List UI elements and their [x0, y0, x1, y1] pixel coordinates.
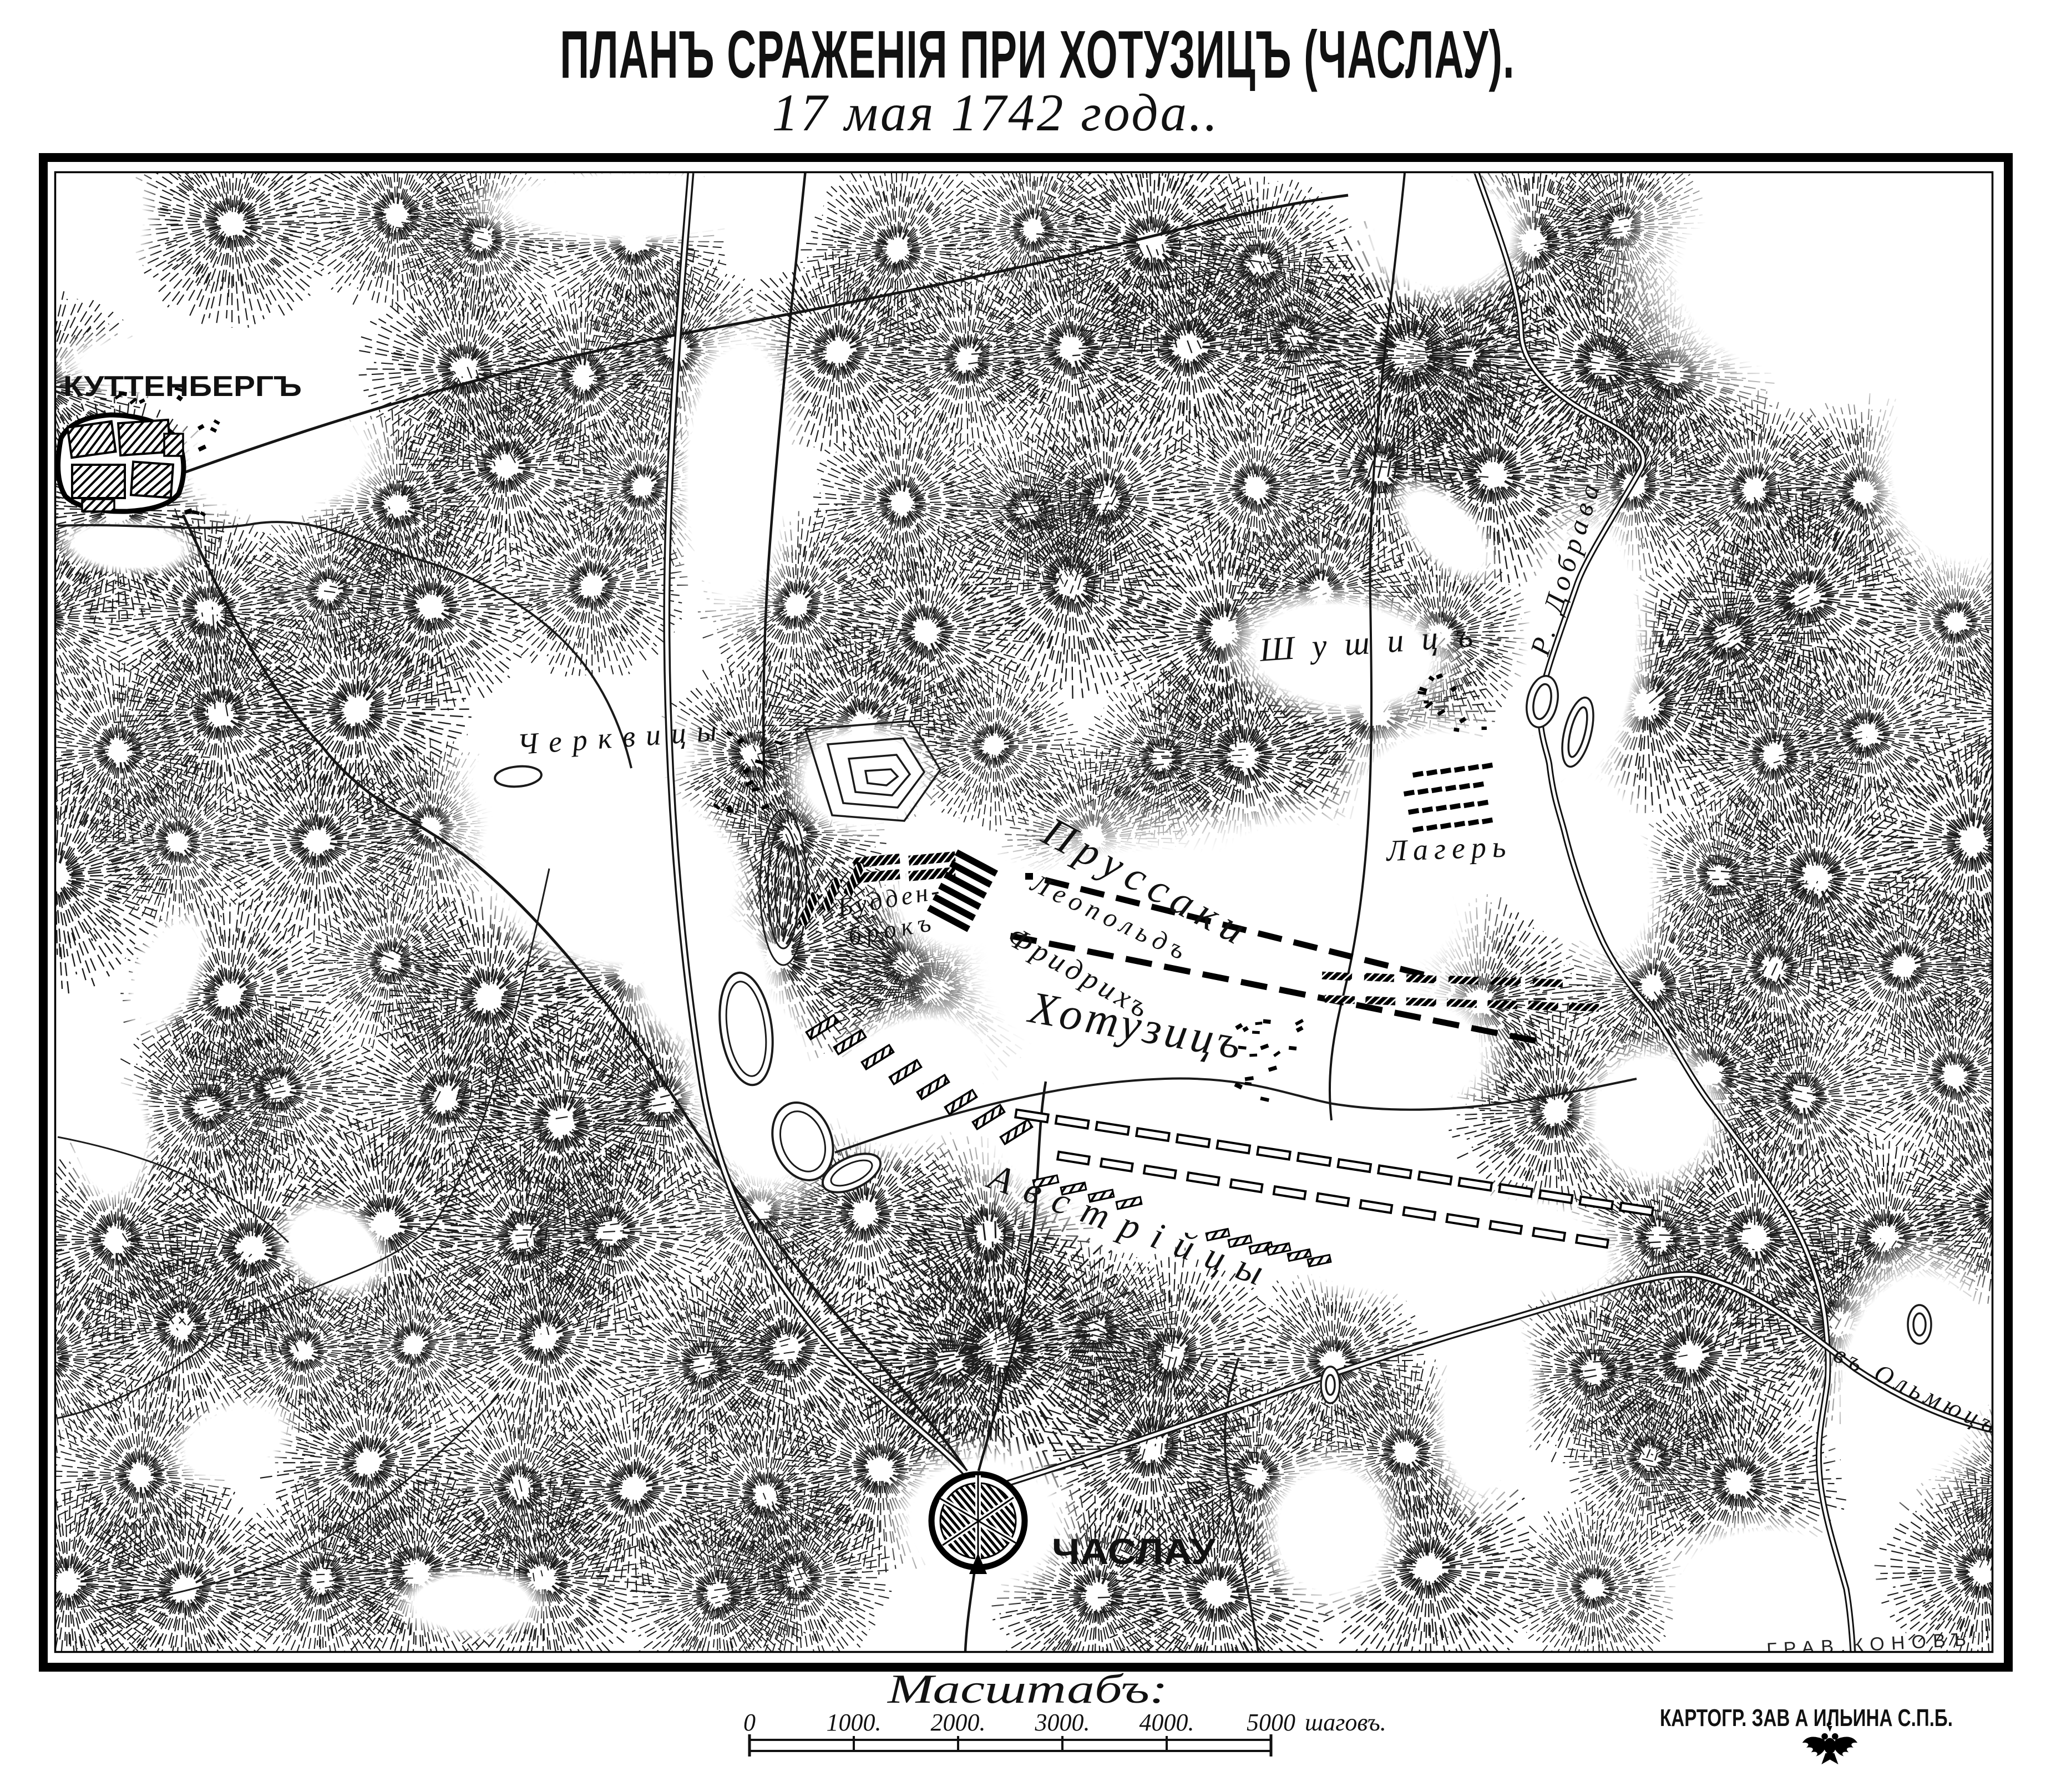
svg-text:КАРТОГР. ЗАВ А ИЛЬИНА С.П.Б.: КАРТОГР. ЗАВ А ИЛЬИНА С.П.Б. [1660, 1704, 1953, 1732]
svg-text:4000.: 4000. [1140, 1709, 1194, 1736]
svg-text:шаговъ.: шаговъ. [1305, 1709, 1386, 1736]
svg-text:3000.: 3000. [1035, 1709, 1090, 1736]
svg-text:2000.: 2000. [931, 1709, 986, 1736]
svg-text:КУТТЕНБЕРГЪ: КУТТЕНБЕРГЪ [63, 370, 302, 403]
svg-text:5000: 5000 [1247, 1709, 1295, 1736]
svg-text:Масштабъ:: Масштабъ: [887, 1667, 1168, 1712]
svg-text:ЧАСЛАУ: ЧАСЛАУ [1052, 1531, 1216, 1572]
svg-text:0: 0 [743, 1709, 756, 1736]
svg-text:1000.: 1000. [827, 1709, 882, 1736]
